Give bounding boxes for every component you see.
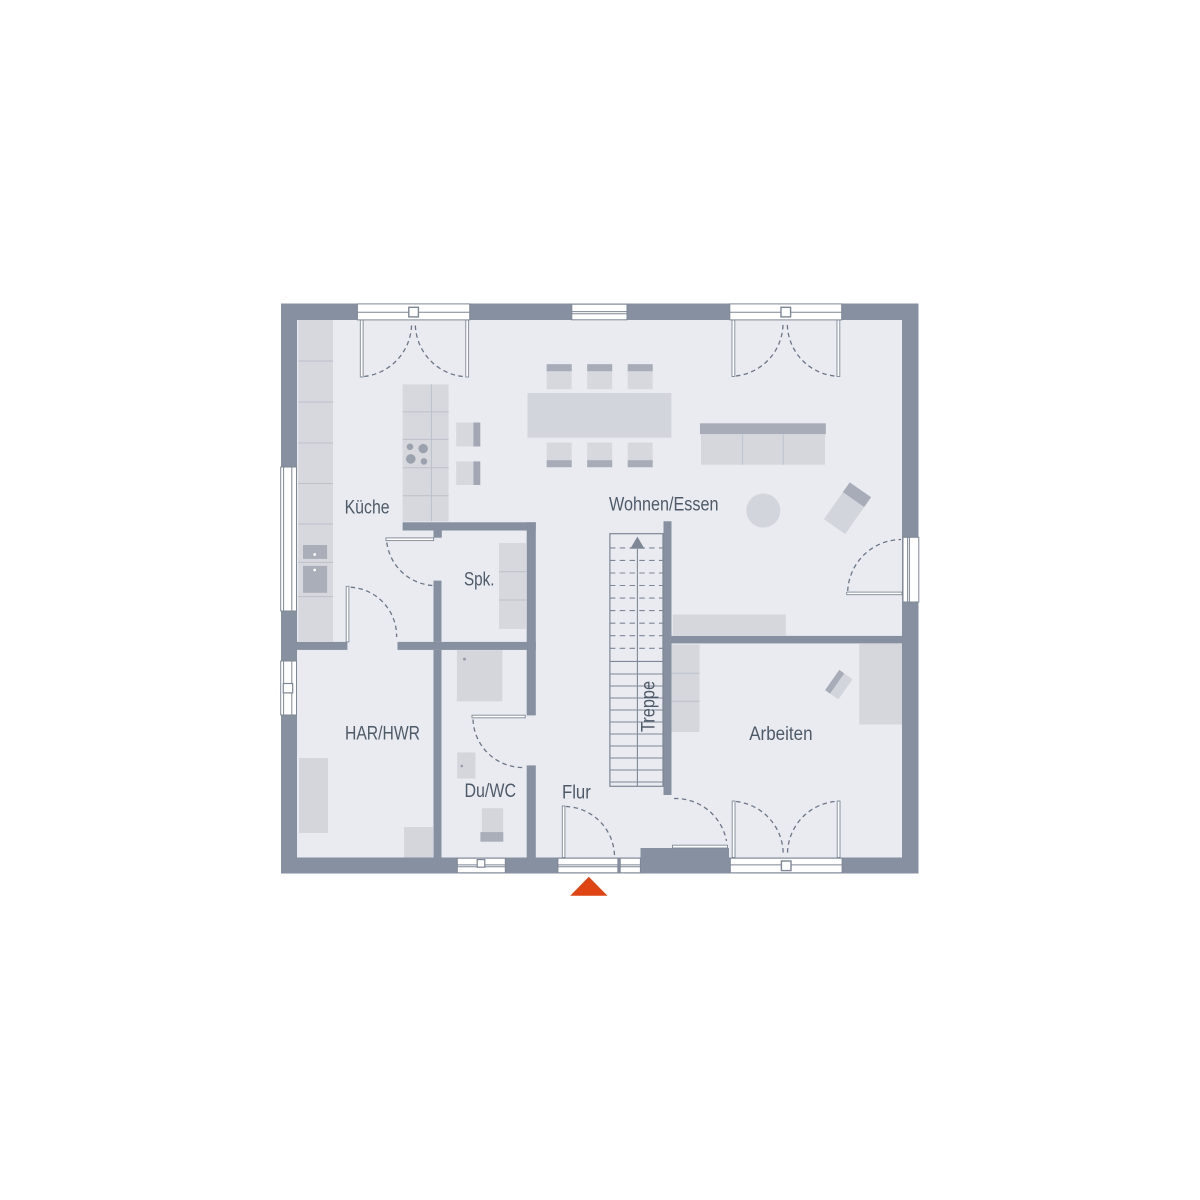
svg-text:Treppe: Treppe <box>638 681 660 732</box>
svg-text:Küche: Küche <box>345 497 390 519</box>
svg-text:Arbeiten: Arbeiten <box>749 723 812 745</box>
svg-text:Flur: Flur <box>562 782 591 804</box>
svg-text:Spk.: Spk. <box>464 568 495 590</box>
svg-text:Wohnen/Essen: Wohnen/Essen <box>609 494 719 516</box>
svg-text:Du/WC: Du/WC <box>465 780 517 802</box>
svg-text:HAR/HWR: HAR/HWR <box>345 722 420 744</box>
